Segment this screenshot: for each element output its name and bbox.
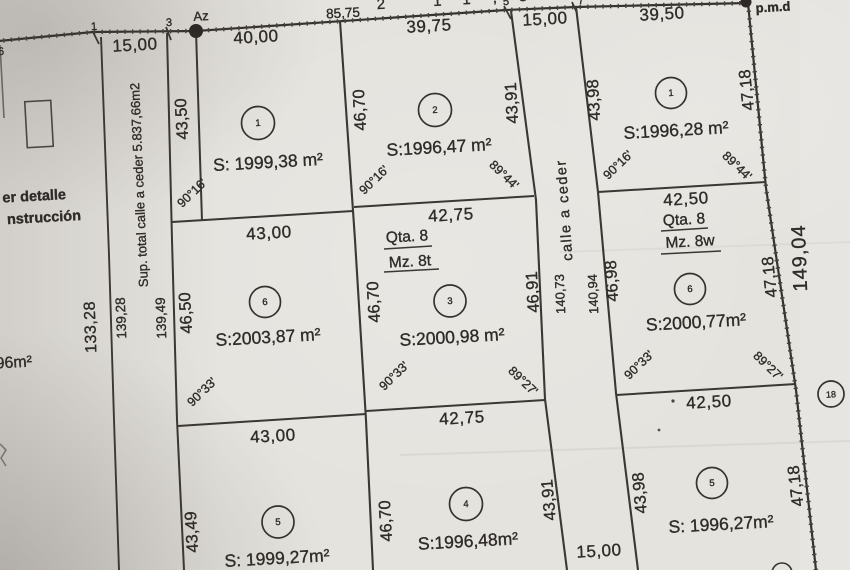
svg-text:2: 2 <box>432 105 438 116</box>
svg-text:1: 1 <box>668 88 674 99</box>
svg-text:6: 6 <box>0 46 4 58</box>
svg-text:39,50: 39,50 <box>639 3 685 24</box>
svg-text:1: 1 <box>91 21 98 33</box>
svg-text:40,00: 40,00 <box>233 26 279 47</box>
svg-text:42,75: 42,75 <box>439 407 486 429</box>
svg-text:p.m.d: p.m.d <box>755 0 791 15</box>
svg-text:18: 18 <box>826 389 837 400</box>
svg-text:133,28: 133,28 <box>82 301 101 353</box>
svg-text:15,00: 15,00 <box>576 540 622 561</box>
svg-text:5: 5 <box>709 478 715 489</box>
svg-text:15,00: 15,00 <box>522 8 568 29</box>
svg-text:43,98: 43,98 <box>584 79 604 121</box>
svg-text:96m²: 96m² <box>0 353 33 372</box>
svg-text:43,91: 43,91 <box>502 82 522 124</box>
svg-text:42,50: 42,50 <box>686 391 733 413</box>
svg-text:43,00: 43,00 <box>246 222 293 244</box>
svg-text:3: 3 <box>447 296 453 307</box>
svg-text:46,70: 46,70 <box>350 89 370 131</box>
svg-text:6: 6 <box>687 284 693 295</box>
svg-text:3: 3 <box>166 17 173 29</box>
svg-text:46,50: 46,50 <box>176 292 196 334</box>
svg-text:43,91: 43,91 <box>538 479 560 522</box>
svg-text:140,73: 140,73 <box>552 274 568 314</box>
svg-text:140,94: 140,94 <box>585 274 601 314</box>
svg-text:43,49: 43,49 <box>182 511 202 553</box>
svg-text:15,00: 15,00 <box>112 34 158 55</box>
svg-text:46,98: 46,98 <box>602 260 622 302</box>
svg-text:43,98: 43,98 <box>629 472 651 515</box>
svg-text:5: 5 <box>275 517 281 528</box>
svg-text:139,28: 139,28 <box>113 297 129 339</box>
svg-text:42,75: 42,75 <box>428 204 475 226</box>
svg-text:139,49: 139,49 <box>153 297 169 339</box>
svg-text:Qta. 8: Qta. 8 <box>385 227 428 246</box>
svg-text:Az: Az <box>193 8 209 24</box>
svg-text:43,00: 43,00 <box>250 425 297 447</box>
svg-text:6: 6 <box>262 297 268 308</box>
svg-text:43,50: 43,50 <box>172 98 192 140</box>
svg-text:Mz. 8t: Mz. 8t <box>388 252 432 271</box>
svg-text:39,75: 39,75 <box>406 15 452 36</box>
svg-text:Qta. 8: Qta. 8 <box>662 210 705 229</box>
svg-text:149,04: 149,04 <box>788 224 812 292</box>
svg-text:46,70: 46,70 <box>364 281 384 323</box>
svg-text:46,70: 46,70 <box>376 500 396 542</box>
svg-text:4: 4 <box>463 499 469 510</box>
svg-text:85,75: 85,75 <box>326 5 361 22</box>
svg-text:46,91: 46,91 <box>523 271 543 313</box>
svg-text:42,50: 42,50 <box>663 188 710 210</box>
svg-text:Mz. 8w: Mz. 8w <box>665 232 716 252</box>
svg-text:1: 1 <box>255 118 261 129</box>
